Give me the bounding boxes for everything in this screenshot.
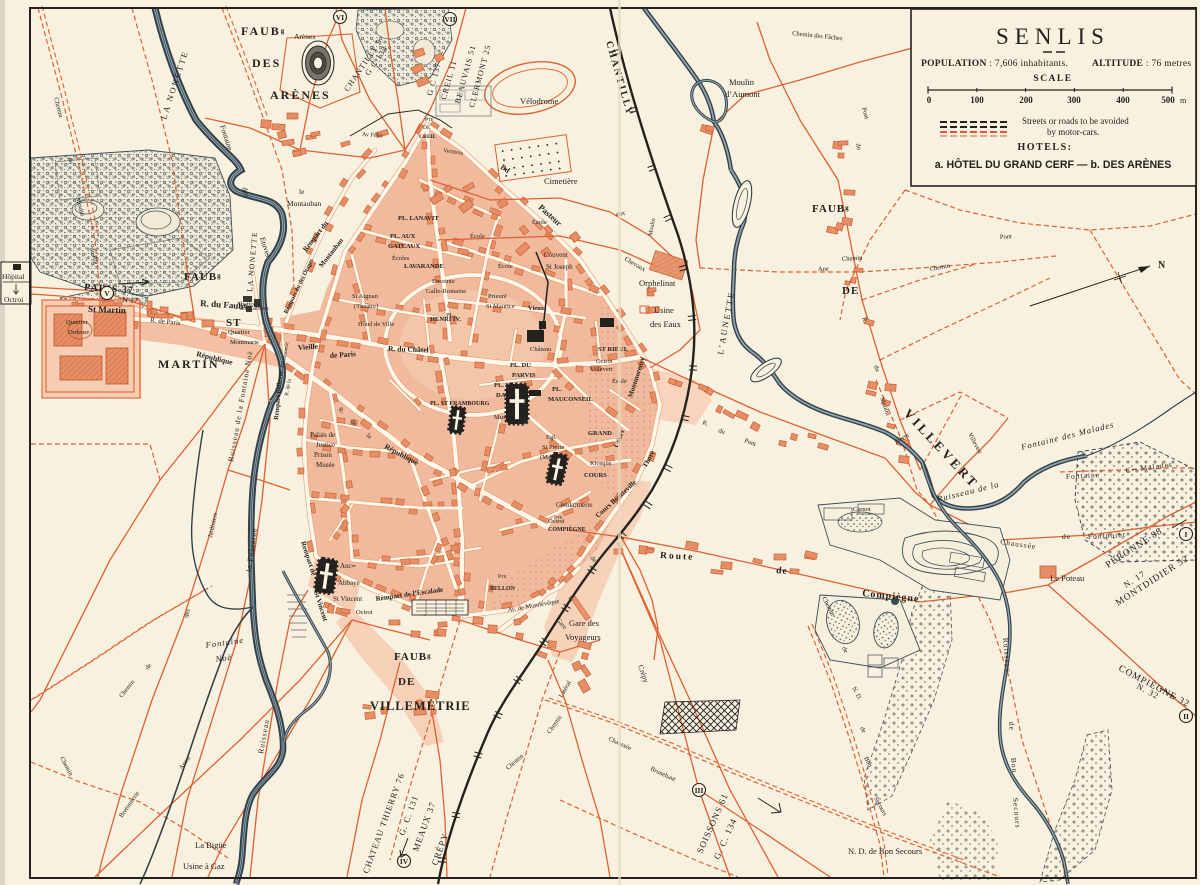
svg-text:SENLIS: SENLIS bbox=[996, 24, 1110, 49]
svg-text:Gallo-Romaine: Gallo-Romaine bbox=[426, 288, 466, 295]
svg-text:Écoles: Écoles bbox=[392, 254, 410, 262]
svg-text:N 17: N 17 bbox=[122, 295, 138, 305]
svg-text:de: de bbox=[776, 566, 788, 577]
svg-text:La Bigüe: La Bigüe bbox=[195, 840, 227, 850]
svg-text:GATEAUX: GATEAUX bbox=[388, 243, 420, 250]
svg-text:St Vincent: St Vincent bbox=[333, 595, 362, 603]
svg-text:École: École bbox=[470, 232, 485, 240]
svg-text:400: 400 bbox=[1116, 95, 1130, 105]
svg-text:École: École bbox=[498, 262, 513, 270]
svg-text:MAUCONSEIL: MAUCONSEIL bbox=[548, 396, 593, 403]
svg-text:HENRI IV.: HENRI IV. bbox=[430, 316, 461, 323]
svg-text:LAVARANDE: LAVARANDE bbox=[404, 263, 444, 270]
svg-text:COMPIÈGNE: COMPIÈGNE bbox=[548, 525, 586, 533]
svg-text:de: de bbox=[1062, 532, 1071, 541]
svg-text:Prison: Prison bbox=[314, 451, 332, 459]
svg-text:Vieux: Vieux bbox=[528, 305, 545, 312]
svg-text:VILLEMÉTRIE: VILLEMÉTRIE bbox=[370, 699, 471, 713]
svg-text:R. du Châtel: R. du Châtel bbox=[388, 344, 429, 354]
svg-text:ALTITUDE : 76 metres: ALTITUDE : 76 metres bbox=[1092, 59, 1191, 69]
svg-text:Bon: Bon bbox=[1009, 757, 1019, 773]
svg-text:le: le bbox=[299, 187, 305, 196]
svg-text:FAUBg: FAUBg bbox=[394, 651, 432, 663]
svg-text:de Paris: de Paris bbox=[330, 349, 357, 360]
svg-text:de: de bbox=[1007, 721, 1017, 731]
svg-text:Couvent: Couvent bbox=[544, 251, 568, 259]
svg-text:Egl.: Egl. bbox=[546, 434, 557, 441]
svg-text:Quartier: Quartier bbox=[66, 319, 88, 326]
svg-text:DE: DE bbox=[423, 125, 431, 131]
svg-text:IV: IV bbox=[400, 857, 409, 866]
svg-text:POPULATION : 7,606 inhabitants: POPULATION : 7,606 inhabitants. bbox=[921, 59, 1068, 69]
svg-text:by motor-cars.: by motor-cars. bbox=[1047, 127, 1099, 137]
svg-text:V: V bbox=[104, 289, 110, 298]
svg-text:Gare des: Gare des bbox=[569, 618, 599, 628]
svg-text:Usine à Gaz: Usine à Gaz bbox=[183, 861, 225, 871]
svg-text:SCALE: SCALE bbox=[1033, 74, 1072, 84]
svg-text:(Marché ): (Marché ) bbox=[540, 454, 566, 461]
svg-text:III: III bbox=[695, 786, 704, 795]
svg-text:Cimetière: Cimetière bbox=[544, 176, 578, 186]
svg-text:FAUBg: FAUBg bbox=[241, 24, 286, 38]
svg-text:a. HÔTEL DU GRAND CERF — b. DE: a. HÔTEL DU GRAND CERF — b. DES ARÈNES bbox=[935, 158, 1172, 171]
svg-text:Montmarie: Montmarie bbox=[230, 339, 259, 346]
svg-text:Abattoirs: Abattoirs bbox=[236, 301, 261, 308]
svg-text:DE: DE bbox=[842, 285, 859, 297]
svg-text:Ane: Ane bbox=[818, 266, 829, 273]
svg-text:m: m bbox=[1180, 96, 1187, 105]
svg-text:Voyageurs: Voyageurs bbox=[565, 632, 601, 642]
svg-text:COURS: COURS bbox=[584, 472, 607, 479]
svg-text:St Maurice: St Maurice bbox=[486, 303, 515, 310]
svg-text:Le Poteau: Le Poteau bbox=[1050, 573, 1085, 583]
svg-text:N. D. de Bon Secours: N. D. de Bon Secours bbox=[848, 846, 922, 856]
svg-text:Pont: Pont bbox=[1000, 233, 1013, 241]
svg-text:0: 0 bbox=[927, 95, 932, 105]
svg-text:ST: ST bbox=[226, 317, 241, 329]
svg-text:FAUBg: FAUBg bbox=[184, 271, 222, 283]
svg-text:St Martin: St Martin bbox=[88, 304, 126, 315]
svg-text:Streets or roads to be avoided: Streets or roads to be avoided bbox=[1022, 116, 1129, 126]
svg-text:Palais de: Palais de bbox=[310, 431, 335, 439]
svg-text:300: 300 bbox=[1067, 95, 1081, 105]
svg-text:(Théâtre): (Théâtre) bbox=[354, 303, 378, 310]
svg-text:Vieille: Vieille bbox=[298, 342, 319, 352]
svg-text:Hôpital: Hôpital bbox=[2, 272, 25, 281]
svg-text:VII: VII bbox=[444, 15, 455, 24]
svg-text:Prieuré: Prieuré bbox=[488, 293, 507, 300]
svg-text:CREIL: CREIL bbox=[419, 134, 437, 140]
svg-text:des Eaux: des Eaux bbox=[650, 319, 682, 329]
svg-text:Kiosque: Kiosque bbox=[590, 460, 612, 467]
svg-text:FAUBg: FAUBg bbox=[812, 203, 850, 215]
svg-text:Octroi: Octroi bbox=[4, 295, 23, 304]
svg-text:Vélodrome: Vélodrome bbox=[520, 96, 558, 106]
svg-text:N: N bbox=[1158, 260, 1166, 271]
svg-text:200: 200 bbox=[1019, 95, 1033, 105]
svg-text:Usine: Usine bbox=[654, 305, 674, 315]
svg-text:DES: DES bbox=[252, 56, 281, 70]
svg-text:GRAND: GRAND bbox=[588, 430, 612, 437]
svg-text:Abbaye: Abbaye bbox=[338, 579, 360, 587]
svg-text:100: 100 bbox=[970, 95, 984, 105]
svg-text:I: I bbox=[1185, 530, 1188, 539]
svg-text:Château: Château bbox=[530, 346, 552, 353]
svg-text:Route: Route bbox=[660, 551, 695, 563]
svg-text:BELLON: BELLON bbox=[490, 586, 516, 592]
svg-text:Villevert: Villevert bbox=[590, 366, 613, 373]
svg-text:Orphelinat: Orphelinat bbox=[639, 278, 676, 288]
svg-text:École: École bbox=[532, 218, 547, 226]
svg-text:Carnot: Carnot bbox=[853, 506, 871, 513]
svg-text:PL. DU: PL. DU bbox=[510, 362, 531, 369]
svg-text:II: II bbox=[1183, 712, 1189, 721]
svg-text:St Aignan: St Aignan bbox=[352, 293, 379, 300]
svg-text:Musée: Musée bbox=[316, 461, 335, 469]
svg-text:DAME: DAME bbox=[496, 392, 516, 399]
svg-text:ARÈNES: ARÈNES bbox=[270, 88, 331, 102]
svg-text:Ordener: Ordener bbox=[68, 329, 90, 336]
svg-text:Gendarmerie: Gendarmerie bbox=[556, 501, 593, 509]
svg-text:Arènes: Arènes bbox=[294, 32, 315, 41]
svg-text:ST RIEUL: ST RIEUL bbox=[598, 346, 629, 353]
svg-text:Justice: Justice bbox=[316, 441, 335, 449]
svg-text:St Joseph: St Joseph bbox=[546, 263, 573, 271]
svg-text:PL. LANAVIT: PL. LANAVIT bbox=[398, 215, 439, 222]
svg-text:Enceinte: Enceinte bbox=[432, 278, 455, 285]
svg-text:Chemin: Chemin bbox=[842, 255, 864, 263]
svg-text:Moulin: Moulin bbox=[729, 77, 755, 87]
svg-text:PL. ST FRAMBOURG: PL. ST FRAMBOURG bbox=[430, 401, 490, 407]
svg-text:Musée: Musée bbox=[494, 414, 511, 421]
svg-text:Quartier: Quartier bbox=[228, 329, 250, 336]
svg-text:St Pierre: St Pierre bbox=[542, 444, 565, 451]
svg-text:HOTELS:: HOTELS: bbox=[1018, 142, 1073, 153]
svg-text:d’Aumont: d’Aumont bbox=[725, 89, 761, 99]
svg-text:Octroi: Octroi bbox=[356, 609, 373, 616]
svg-text:PL. N.: PL. N. bbox=[494, 382, 512, 389]
svg-text:DE: DE bbox=[398, 676, 415, 688]
svg-text:Fontaine: Fontaine bbox=[1066, 470, 1101, 481]
svg-text:Hôtel de Ville: Hôtel de Ville bbox=[358, 321, 394, 328]
svg-text:PL.: PL. bbox=[552, 386, 562, 393]
svg-text:500: 500 bbox=[1161, 95, 1175, 105]
svg-text:Montauban: Montauban bbox=[287, 199, 321, 208]
svg-text:PL. AUX: PL. AUX bbox=[390, 233, 416, 240]
svg-text:PARVIS: PARVIS bbox=[512, 372, 536, 379]
svg-text:Octroi: Octroi bbox=[596, 358, 613, 365]
svg-text:VI: VI bbox=[336, 13, 344, 22]
